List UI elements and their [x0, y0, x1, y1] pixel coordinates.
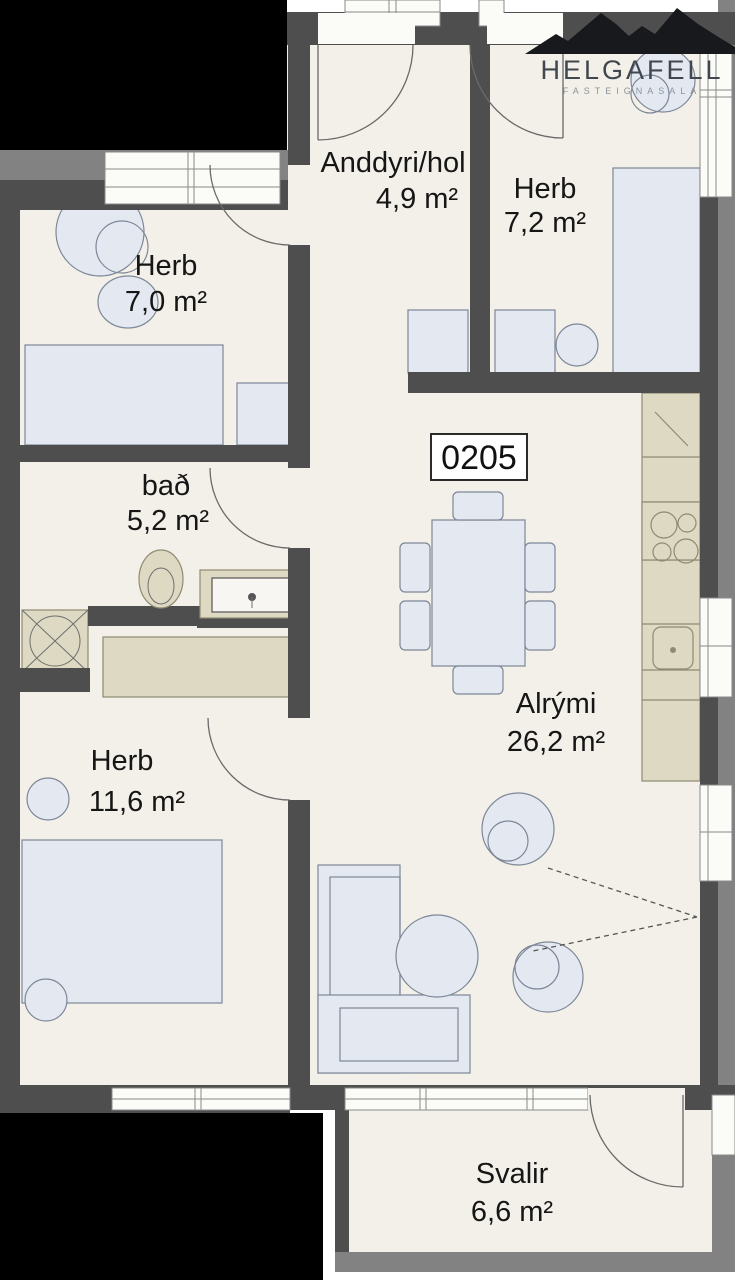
window-herb70: [105, 152, 280, 204]
balcony-wall-left: [335, 1110, 349, 1258]
window-alrymi-right: [700, 785, 732, 881]
dining-chair: [400, 543, 430, 592]
wall-corridor: [288, 548, 310, 718]
wardrobe: [103, 637, 308, 697]
door-opening-entry: [318, 13, 415, 44]
exterior-wall-left: [0, 180, 20, 1113]
outside-mask-bottom-left: [0, 1113, 323, 1280]
logo-name: HELGAFELL: [540, 55, 723, 86]
wall-corridor: [288, 800, 310, 1085]
room-label-herb70: Herb: [135, 251, 198, 281]
dining-chair: [453, 492, 503, 520]
door-opening-balcony: [588, 1088, 685, 1110]
kitchen-counter: [642, 393, 700, 781]
room-area-svalir: 6,6 m²: [471, 1197, 553, 1227]
desk-herb72: [495, 310, 555, 373]
dining-chair: [525, 543, 555, 592]
room-area-herb72: 7,2 m²: [504, 208, 586, 238]
cabinet-anddyri: [408, 310, 468, 373]
room-label-anddyri: Anddyri/hol: [320, 148, 465, 178]
room-label-herb116: Herb: [91, 746, 154, 776]
wall-corridor: [288, 45, 310, 165]
floor-plan: HELGAFELL FASTEIGNASALA 0205 Anddyri/hol…: [0, 0, 735, 1280]
exterior-wall-right: [700, 45, 718, 1095]
room-area-bad: 5,2 m²: [127, 506, 209, 536]
door-opening-herb70: [288, 165, 310, 245]
wall-herb70-bad: [20, 445, 290, 462]
dining-table: [432, 520, 525, 666]
kitchen-layer: [642, 393, 700, 781]
dining-chair: [453, 666, 503, 694]
room-area-herb70: 7,0 m²: [125, 287, 207, 317]
room-area-herb116: 11,6 m²: [89, 787, 185, 817]
stool-herb116: [25, 979, 67, 1021]
bed-herb116: [22, 840, 222, 1003]
bed-herb70: [25, 345, 223, 445]
dining-chair: [400, 601, 430, 650]
wall-anddyri-herb72: [470, 45, 490, 373]
coffee-table: [396, 915, 478, 997]
balcony-wall-bottom: [335, 1252, 715, 1272]
room-label-bad: bað: [142, 471, 190, 501]
window-alrymi-right: [700, 598, 732, 697]
dining-chair: [525, 601, 555, 650]
wall-bad-bottom: [20, 668, 90, 692]
room-label-alrymi: Alrými: [516, 689, 597, 719]
room-area-alrymi: 26,2 m²: [507, 727, 605, 757]
bed-herb72: [613, 168, 700, 373]
chair-herb72: [556, 324, 598, 366]
floorplan-canvas: [0, 0, 735, 1280]
wall-corridor: [288, 245, 310, 468]
window-balcony-right: [712, 1095, 735, 1155]
wall-hall-alrymi: [408, 372, 700, 393]
door-opening-herb116: [288, 718, 310, 800]
outside-mask-top-left: [0, 0, 287, 150]
unit-number: 0205: [430, 433, 528, 481]
logo-tagline: FASTEIGNASALA: [563, 86, 702, 96]
armchair: [513, 942, 583, 1012]
room-area-anddyri: 4,9 m²: [376, 184, 458, 214]
toilet: [139, 550, 183, 608]
room-label-herb72: Herb: [514, 174, 577, 204]
door-opening-bad: [288, 468, 310, 548]
room-label-svalir: Svalir: [476, 1159, 549, 1189]
stool-herb116: [27, 778, 69, 820]
